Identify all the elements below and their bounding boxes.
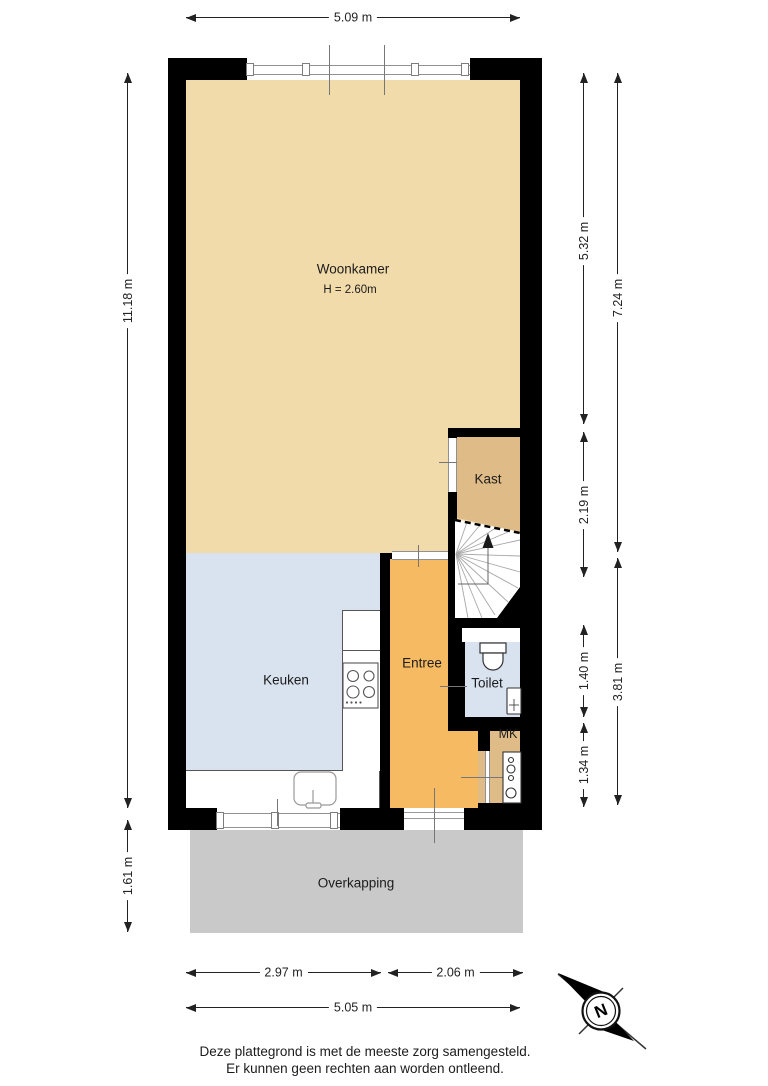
disclaimer-line2: Er kunnen geen rechten aan worden ontlee… — [0, 1060, 730, 1077]
toilet-label: Toilet — [471, 676, 503, 691]
woonkamer-label: Woonkamer — [317, 262, 390, 277]
plan-graphics: N — [0, 0, 768, 1086]
dimension-right-mk: 1.34 m — [583, 723, 584, 807]
dimension-right-woonkamer: 5.32 m — [583, 73, 584, 424]
floorplan-canvas: N Woonkamer H = 2.60m Kast Keuken Entree… — [0, 0, 768, 1086]
woonkamer-height-note: H = 2.60m — [323, 284, 376, 296]
staircase — [455, 519, 520, 618]
stove — [343, 663, 378, 708]
disclaimer-line1: Deze plattegrond is met de meeste zorg s… — [0, 1043, 730, 1060]
dimension-left-overkapping: 1.61 m — [127, 820, 128, 932]
dimension-bottom-entree: 2.06 m — [388, 972, 523, 973]
toilet-fixture — [480, 643, 506, 670]
compass-rose: N — [558, 973, 646, 1049]
meter-panel — [503, 752, 521, 803]
disclaimer: Deze plattegrond is met de meeste zorg s… — [0, 1043, 730, 1077]
entree-label: Entree — [402, 656, 442, 671]
mk-label: MK — [499, 727, 518, 741]
kitchen-sink — [294, 772, 336, 808]
keuken-label: Keuken — [263, 673, 309, 688]
overkapping-label: Overkapping — [318, 876, 395, 891]
dimension-right-outer-bottom: 3.81 m — [617, 558, 618, 805]
dimension-right-outer-top: 7.24 m — [617, 73, 618, 552]
dimension-bottom-total: 5.05 m — [186, 1007, 520, 1008]
kast-label: Kast — [474, 472, 501, 487]
dimension-right-kast: 2.19 m — [583, 432, 584, 577]
dimension-left-height: 11.18 m — [127, 73, 128, 808]
dimension-right-toilet: 1.40 m — [583, 625, 584, 717]
dimension-top-width: 5.09 m — [186, 17, 520, 18]
toilet-sink — [507, 688, 521, 714]
dimension-bottom-keuken: 2.97 m — [186, 972, 381, 973]
